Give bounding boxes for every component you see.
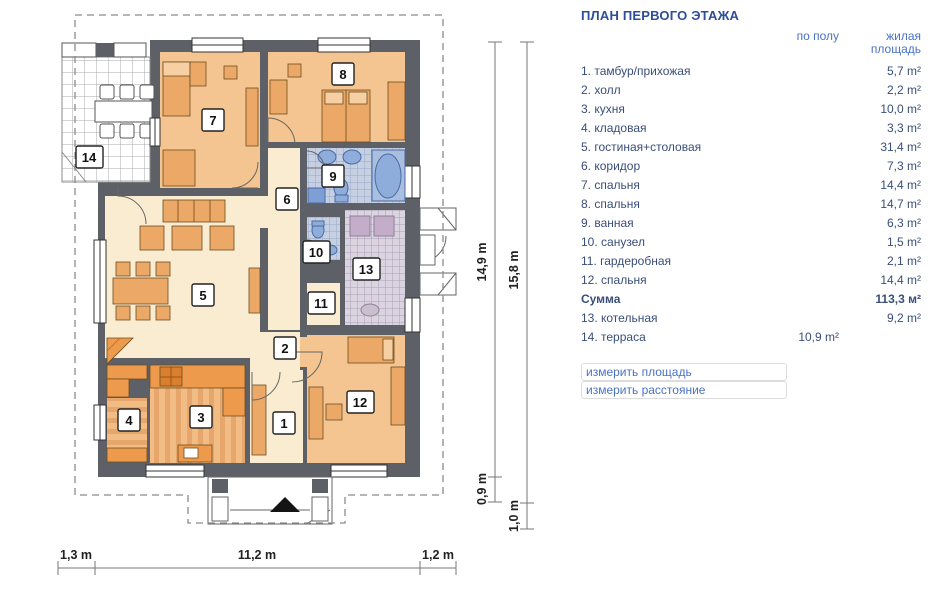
bed-room7 [163,62,190,116]
table-row: 4. кладовая3,3 m² [581,118,921,137]
dim-right-inner-low: 0,9 m [475,473,489,505]
svg-text:7: 7 [209,113,216,128]
armchair-living-2 [210,226,234,250]
coffee-table-living [172,226,202,250]
legend-panel: ПЛАН ПЕРВОГО ЭТАЖА по полу жилая площадь… [581,8,921,399]
table-room8 [288,64,301,77]
desk-room12 [309,387,323,439]
window-bottom-room12 [331,465,387,477]
armchair-living-1 [140,226,164,250]
room-label-1: 1 [273,412,295,434]
floorplan-page: 1 2 3 4 5 6 7 8 9 10 11 12 13 14 14,9 m … [0,0,938,607]
bathtub [372,150,405,201]
room-label-13: 13 [353,258,380,280]
front-porch [208,477,332,524]
dim-right-outer: 15,8 m [507,251,521,290]
table-row: 7. спальня14,4 m² [581,175,921,194]
side-entrance-steps [420,208,456,295]
kitchen-counter [150,365,245,388]
sofa-living [163,200,225,222]
table-row: 13. котельная9,2 m² [581,308,921,327]
table-row: 5. гостиная+столовая31,4 m² [581,137,921,156]
svg-text:4: 4 [125,413,133,428]
page-title: ПЛАН ПЕРВОГО ЭТАЖА [581,8,921,23]
kitchen-counter-right [223,388,245,416]
room-label-3: 3 [190,406,212,428]
terrace-table-set [95,85,154,138]
window-left-pantry [94,405,106,440]
washer-bath [308,188,325,203]
dim-bottom-left: 1,3 m [60,548,92,562]
room-label-12: 12 [347,391,374,413]
room-label-5: 5 [192,284,214,306]
dining-set-living [113,262,170,320]
table-row: 1. тамбур/прихожая5,7 m² [581,61,921,80]
chair-room12 [326,404,342,420]
window-top-room7 [192,38,243,52]
column-header-living: жилая площадь [839,30,921,56]
sink-bath-1 [318,150,336,164]
room-label-2: 2 [274,337,296,359]
room-label-4: 4 [118,409,140,431]
dim-bottom-right: 1,2 m [422,548,454,562]
measure-area-link[interactable]: измерить площадь [581,363,787,381]
window-right-bath [405,166,420,198]
room-table: 1. тамбур/прихожая5,7 m² 2. холл2,2 m² 3… [581,61,921,346]
wardrobe-room8 [388,82,405,140]
dim-right-outer-low: 1,0 m [507,500,521,532]
table-row: 8. спальня14,7 m² [581,194,921,213]
table-room7 [224,66,237,79]
bed-room12 [348,337,394,363]
window-top-room8 [318,38,370,52]
kitchen-sink-unit [178,445,212,462]
table-header: по полу жилая площадь [581,30,921,56]
table-row: 10. санузел1,5 m² [581,232,921,251]
table-row: 14. терраса10,9 m² [581,327,921,346]
window-bottom-kitchen [146,465,204,477]
svg-text:6: 6 [283,192,290,207]
room-label-14: 14 [76,146,103,168]
desk-room8 [270,80,287,114]
table-row: 3. кухня10,0 m² [581,99,921,118]
table-row: 11. гардеробная2,1 m² [581,251,921,270]
sink-bath-2 [343,150,361,164]
svg-text:5: 5 [199,288,206,303]
measure-distance-link[interactable]: измерить расстояние [581,381,787,399]
table-row-sum: Сумма113,3 м² [581,289,921,308]
bed-room8 [322,90,370,142]
room-label-7: 7 [202,109,224,131]
floor-plan-drawing: 1 2 3 4 5 6 7 8 9 10 11 12 13 14 14,9 m … [0,0,570,607]
svg-text:14: 14 [82,150,97,165]
column-header-floor: по полу [747,30,839,56]
toilet-wc [312,221,324,238]
room-label-11: 11 [308,292,335,314]
room-6-floor [268,148,300,330]
measure-links: измерить площадь измерить расстояние [581,363,921,399]
table-row: 2. холл2,2 m² [581,80,921,99]
room-label-9: 9 [322,165,344,187]
table-row: 9. ванная6,3 m² [581,213,921,232]
window-right-boiler [405,298,420,332]
table-row: 6. коридор7,3 m² [581,156,921,175]
bench-room7 [163,150,195,186]
window-terrace-room7 [150,118,160,146]
room-label-8: 8 [332,63,354,85]
window-left-living [94,240,106,323]
wardrobe-room1 [252,385,266,455]
svg-text:2: 2 [281,341,288,356]
dim-right-inner: 14,9 m [475,243,489,282]
svg-text:10: 10 [309,245,323,260]
room-label-10: 10 [303,241,330,263]
svg-text:1: 1 [280,416,287,431]
svg-text:9: 9 [329,169,336,184]
svg-text:13: 13 [359,262,373,277]
svg-text:8: 8 [339,67,346,82]
desk-room7 [246,88,258,146]
floor-plan: 1 2 3 4 5 6 7 8 9 10 11 12 13 14 14,9 m … [0,0,570,607]
wardrobe-room12 [391,367,405,425]
dim-bottom-mid: 11,2 m [238,548,276,562]
wardrobe-room7 [190,62,206,86]
svg-text:12: 12 [353,395,367,410]
table-row: 12. спальня14,4 m² [581,270,921,289]
svg-text:3: 3 [197,410,204,425]
room-label-6: 6 [276,188,298,210]
tv-cabinet-living [249,268,260,313]
svg-text:11: 11 [314,296,328,311]
